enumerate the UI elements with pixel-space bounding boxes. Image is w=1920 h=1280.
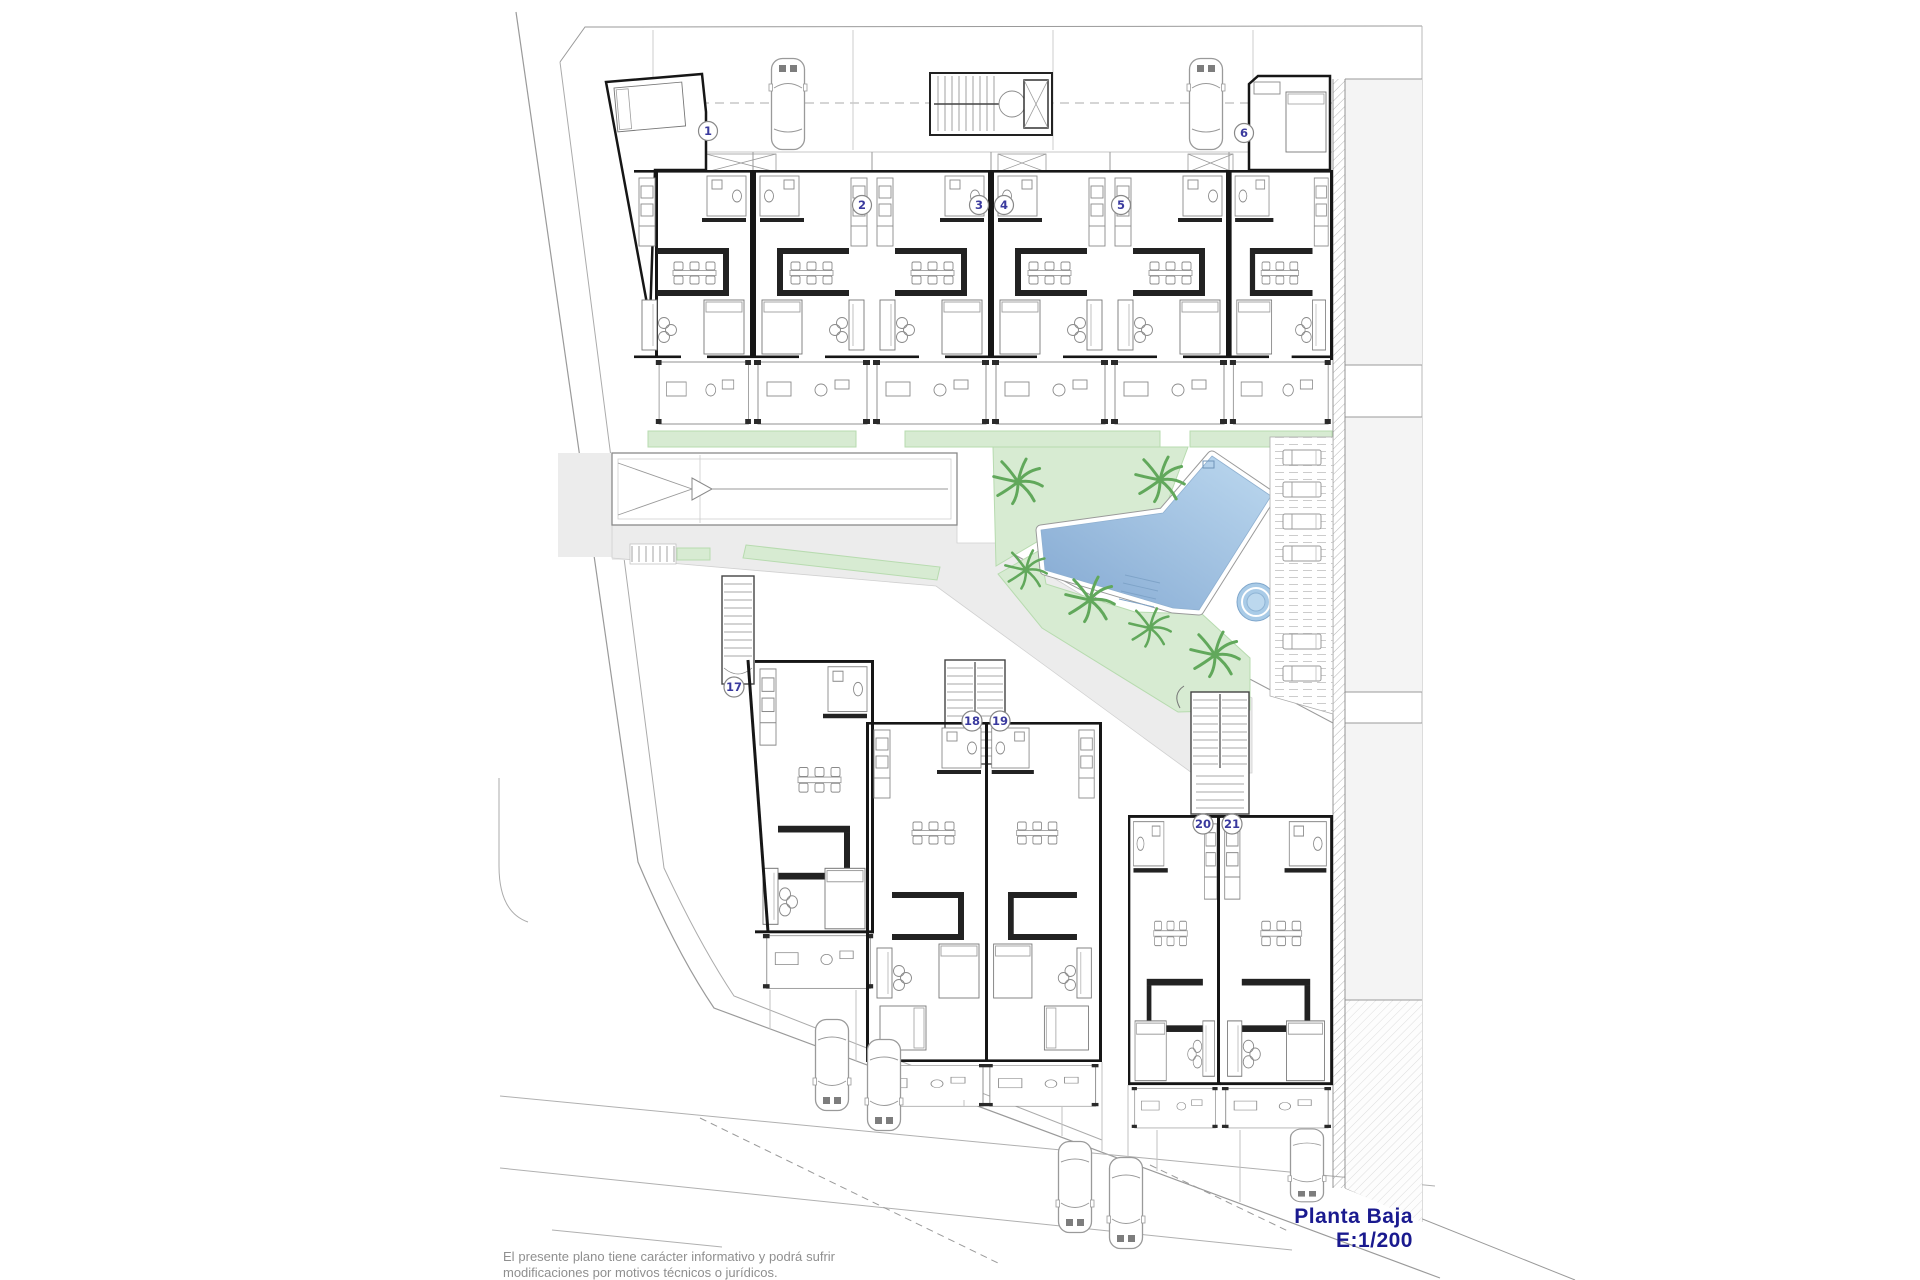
unit-badge-4: 4 bbox=[995, 196, 1014, 215]
car-icon bbox=[769, 59, 807, 150]
terrace bbox=[754, 360, 870, 424]
boundary-wall-hatch bbox=[1333, 79, 1345, 1188]
floor-plan-page: 1 2 3 4 5 6 17 18 19 20 21 Planta Baja E… bbox=[0, 0, 1920, 1280]
spa-whirlpool bbox=[1237, 583, 1275, 621]
apartment-unit-19 bbox=[985, 722, 1099, 1062]
sun-lounger-icon bbox=[1283, 514, 1321, 529]
unit-badge-17: 17 bbox=[724, 677, 744, 697]
street-line bbox=[552, 1230, 722, 1247]
apartment-unit-21 bbox=[1220, 815, 1333, 1085]
terrace bbox=[1132, 1087, 1218, 1128]
drawing-title: Planta Baja bbox=[1053, 1205, 1413, 1229]
unit-badge-5: 5 bbox=[1112, 196, 1131, 215]
terrace bbox=[986, 1064, 1099, 1106]
terrace bbox=[656, 360, 751, 424]
svg-text:2: 2 bbox=[858, 198, 866, 212]
svg-text:1: 1 bbox=[704, 124, 712, 138]
sun-lounger-icon bbox=[1283, 482, 1321, 497]
terrace bbox=[992, 360, 1108, 424]
stair-landing bbox=[999, 91, 1025, 117]
svg-text:21: 21 bbox=[1224, 817, 1240, 831]
svg-text:4: 4 bbox=[1000, 198, 1008, 212]
svg-text:19: 19 bbox=[992, 714, 1008, 728]
apartment-unit-18 bbox=[869, 722, 988, 1062]
disclaimer-note: El presente plano tiene carácter informa… bbox=[503, 1249, 835, 1280]
sun-lounger-icon bbox=[1283, 450, 1321, 465]
staircase-core-north bbox=[930, 73, 1052, 135]
unit-badge-20: 20 bbox=[1193, 814, 1213, 834]
sun-lounger-icon bbox=[1283, 666, 1321, 681]
svg-text:20: 20 bbox=[1195, 817, 1211, 831]
svg-text:18: 18 bbox=[964, 714, 980, 728]
drawing-scale: E:1/200 bbox=[1053, 1229, 1413, 1253]
apartment-unit-6 bbox=[1229, 170, 1333, 358]
svg-text:17: 17 bbox=[726, 680, 742, 694]
disclaimer-line-2: modificaciones por motivos técnicos o ju… bbox=[503, 1265, 835, 1280]
terrace bbox=[763, 934, 873, 988]
unit-badge-21: 21 bbox=[1222, 814, 1242, 834]
unit-badge-6: 6 bbox=[1235, 124, 1254, 143]
svg-text:3: 3 bbox=[975, 198, 983, 212]
unit-badge-19: 19 bbox=[990, 711, 1010, 731]
unit-badge-2: 2 bbox=[853, 196, 872, 215]
sun-lounger-icon bbox=[1283, 634, 1321, 649]
unit-badge-18: 18 bbox=[962, 711, 982, 731]
car-icon bbox=[813, 1020, 851, 1111]
adjacent-road-east bbox=[1333, 79, 1422, 1222]
terrace bbox=[1111, 360, 1227, 424]
street-curb-corner bbox=[499, 778, 528, 922]
terrace bbox=[1222, 1087, 1331, 1128]
apartment-unit-2 bbox=[753, 170, 872, 358]
drawing-title-block: Planta Baja E:1/200 bbox=[1053, 1205, 1413, 1253]
sun-deck bbox=[1270, 437, 1333, 714]
entry-deck-crosses bbox=[706, 154, 1233, 172]
parking-ramp bbox=[612, 453, 957, 525]
svg-text:5: 5 bbox=[1117, 198, 1125, 212]
unit-badge-3: 3 bbox=[970, 196, 989, 215]
car-icon bbox=[865, 1040, 903, 1131]
car-icon bbox=[1187, 59, 1225, 150]
car-icon bbox=[1288, 1129, 1326, 1202]
unit-badge-1: 1 bbox=[699, 122, 718, 141]
apartment-unit-17 bbox=[755, 660, 874, 933]
terrace bbox=[1230, 360, 1331, 424]
sun-lounger-icon bbox=[1283, 546, 1321, 561]
terrace bbox=[873, 360, 989, 424]
floor-plan-canvas: 1 2 3 4 5 6 17 18 19 20 21 bbox=[0, 0, 1920, 1280]
svg-text:6: 6 bbox=[1240, 126, 1248, 140]
disclaimer-line-1: El presente plano tiene carácter informa… bbox=[503, 1249, 835, 1265]
apartment-unit-20 bbox=[1128, 815, 1221, 1085]
